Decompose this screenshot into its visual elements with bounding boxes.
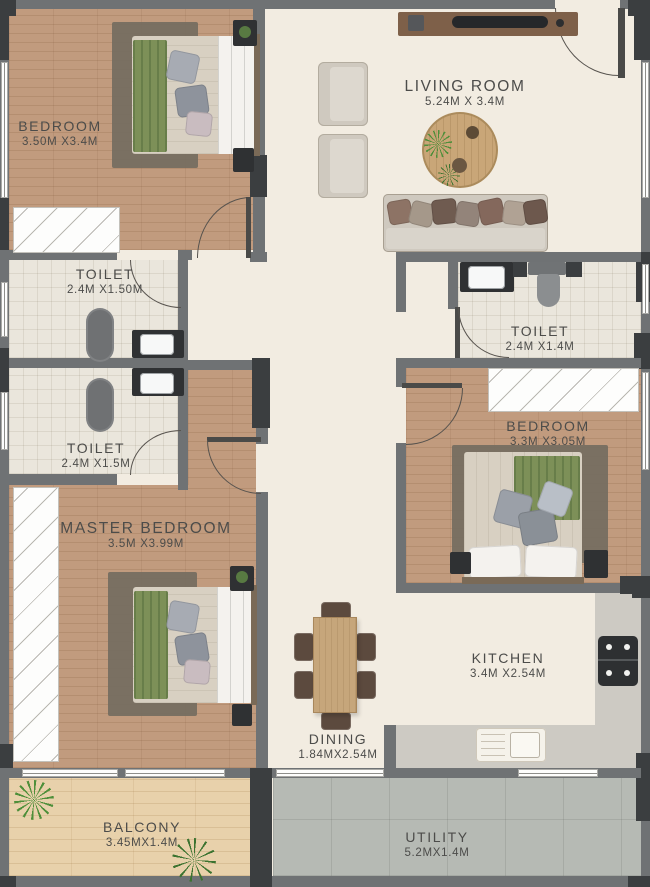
window xyxy=(276,769,384,777)
tv-icon xyxy=(452,16,548,28)
bedroom2-pillow-white xyxy=(468,545,522,580)
bedroom2-headboard xyxy=(462,577,584,584)
pillar xyxy=(628,876,650,887)
coffee-table-plant-icon xyxy=(424,130,452,158)
dining-label: DINING 1.84MX2.54M xyxy=(298,731,377,763)
pillar xyxy=(0,198,9,254)
balcony-label: BALCONY 3.45MX1.4M xyxy=(103,819,181,851)
master-bench xyxy=(232,704,252,726)
bedroom1-closet xyxy=(13,207,120,253)
entry-door-leaf xyxy=(618,8,625,78)
kitchen-label: KITCHEN 3.4M X2.54M xyxy=(470,650,546,682)
pillar-balcony-divider xyxy=(250,768,272,887)
pillar xyxy=(0,876,16,887)
bedroom2-label: BEDROOM 3.3M X3.05M xyxy=(506,418,590,450)
bedroom1-blanket xyxy=(133,40,167,152)
sofa-pillow xyxy=(522,198,548,225)
wall-living-bottom xyxy=(396,252,641,262)
utility-label: UTILITY 5.2MX1.4M xyxy=(404,829,469,861)
tv-console-box xyxy=(408,15,424,31)
kitchen-sink-basin-icon xyxy=(510,732,540,758)
stove-divider xyxy=(598,659,638,661)
stove-burner xyxy=(624,644,630,650)
wall-toilet3-left xyxy=(448,262,458,309)
master-blanket xyxy=(134,591,168,699)
pillar xyxy=(0,16,9,60)
pillar xyxy=(566,262,582,277)
nightstand-plant-icon xyxy=(236,571,248,583)
window xyxy=(22,769,118,777)
dining-chair xyxy=(294,633,314,661)
window xyxy=(518,769,598,777)
pillar xyxy=(636,753,650,821)
coffee-table-vase-icon xyxy=(452,158,467,173)
toilet1-label: TOILET 2.4M X1.50M xyxy=(67,266,143,298)
sofa-seat xyxy=(386,228,545,249)
wc-bowl-icon xyxy=(537,274,560,307)
dining-chair xyxy=(321,712,351,730)
balcony-plant-icon xyxy=(14,780,54,820)
outer-wall-top xyxy=(0,0,555,9)
toilet1-sink-icon xyxy=(140,334,174,355)
bedroom1-duvet xyxy=(218,36,258,154)
wall-bedroom2-bottom xyxy=(396,583,641,593)
nightstand-plant-icon xyxy=(239,26,251,38)
floor-plan: BEDROOM 3.50M X3.4M LIVING ROOM 5.24M X … xyxy=(0,0,650,887)
bedroom1-pillow xyxy=(165,49,201,85)
bedroom2-pillow-white xyxy=(524,545,578,580)
toilet3-label: TOILET 2.4M X1.4M xyxy=(506,323,575,355)
bedroom1-bench xyxy=(233,148,254,172)
window xyxy=(1,392,8,450)
pillar xyxy=(620,576,641,594)
dining-chair xyxy=(356,633,376,661)
master-duvet xyxy=(217,587,255,703)
armchair-cushion xyxy=(330,139,364,193)
bedroom2-nightstand xyxy=(450,552,471,574)
toilet1-shower-icon xyxy=(86,308,114,362)
wall-toilet2-bottom xyxy=(0,474,117,485)
sofa-pillow xyxy=(477,197,507,227)
window xyxy=(642,264,649,314)
wall-bedroom1-bottom xyxy=(250,252,267,262)
master-wardrobe xyxy=(13,487,59,762)
wall-nook-top xyxy=(188,360,258,370)
window xyxy=(1,62,8,198)
toilet3-sink-icon xyxy=(468,266,505,289)
coffee-table-vase-icon xyxy=(466,126,479,139)
bedroom1-pillow xyxy=(185,111,213,138)
kitchen-sink-drawers xyxy=(481,734,505,756)
dining-chair xyxy=(294,671,314,699)
bedroom1-label: BEDROOM 3.50M X3.4M xyxy=(18,118,102,150)
armchair-cushion xyxy=(330,67,364,121)
pillar xyxy=(513,262,527,277)
bedroom1-headboard xyxy=(254,34,260,156)
stove-icon xyxy=(598,636,638,686)
toilet2-sink-icon xyxy=(140,373,174,394)
living-room-label: LIVING ROOM 5.24M X 3.4M xyxy=(405,78,526,110)
stove-burner xyxy=(606,644,612,650)
window xyxy=(642,62,649,198)
toilet2-label: TOILET 2.4M X1.5M xyxy=(62,440,131,472)
dining-chair xyxy=(356,671,376,699)
pillar xyxy=(634,12,650,60)
wall-bedroom2-top xyxy=(396,358,641,368)
dining-table xyxy=(313,617,357,713)
bedroom2-nightstand xyxy=(584,550,608,578)
master-headboard xyxy=(251,585,257,705)
pillar xyxy=(0,348,9,392)
master-pillow xyxy=(166,600,201,635)
bedroom2-closet xyxy=(488,368,639,412)
master-pillow xyxy=(183,659,211,685)
wall-kitchen-stub xyxy=(384,725,396,770)
stove-burner xyxy=(624,670,630,676)
window xyxy=(642,372,649,470)
wall-master-right xyxy=(256,492,268,768)
toilet2-shower-icon xyxy=(86,378,114,432)
master-bedroom-label: MASTER BEDROOM 3.5M X3.99M xyxy=(60,520,231,552)
wall-corridor-right xyxy=(396,253,406,312)
window xyxy=(125,769,225,777)
stove-burner xyxy=(606,670,612,676)
bedroom1-door-leaf xyxy=(246,197,251,258)
utility-floor xyxy=(273,777,641,876)
pillar xyxy=(0,0,16,16)
outer-wall-bottom xyxy=(0,876,650,887)
wall-bedroom2-left xyxy=(396,443,406,585)
window xyxy=(1,282,8,337)
pillar xyxy=(252,358,270,428)
tv-console-speaker-icon xyxy=(556,19,564,27)
